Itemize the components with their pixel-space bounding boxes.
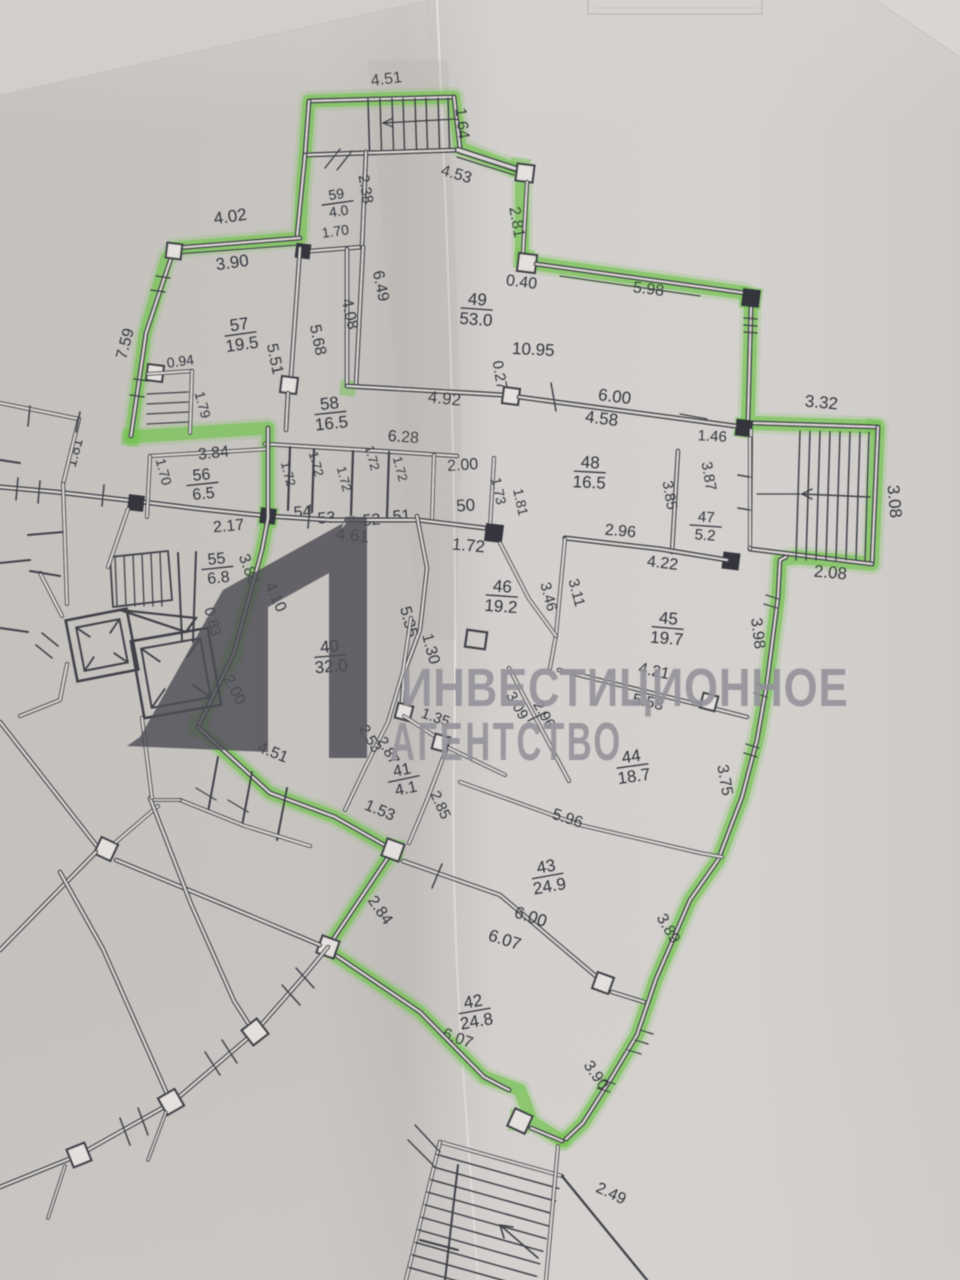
svg-text:2.00: 2.00 (447, 456, 479, 475)
svg-text:6.5: 6.5 (192, 485, 216, 504)
svg-text:50: 50 (456, 495, 476, 515)
svg-text:3.32: 3.32 (804, 392, 839, 414)
svg-text:6.28: 6.28 (387, 428, 419, 447)
svg-text:3.08: 3.08 (884, 484, 906, 519)
svg-text:19.2: 19.2 (484, 596, 518, 617)
svg-text:4.58: 4.58 (584, 407, 619, 430)
svg-text:55: 55 (207, 550, 227, 569)
svg-text:4.0: 4.0 (328, 202, 350, 221)
svg-text:16.5: 16.5 (314, 412, 349, 434)
svg-text:48: 48 (580, 453, 600, 473)
svg-text:2.08: 2.08 (813, 562, 848, 584)
svg-text:3.84: 3.84 (197, 443, 230, 463)
svg-text:53.0: 53.0 (459, 309, 493, 330)
svg-text:4.92: 4.92 (427, 387, 462, 409)
svg-text:16.5: 16.5 (572, 472, 606, 493)
svg-text:58: 58 (319, 393, 340, 414)
svg-text:59: 59 (327, 185, 345, 203)
svg-text:45: 45 (658, 608, 679, 629)
svg-text:2.96: 2.96 (604, 522, 637, 542)
svg-text:5.2: 5.2 (694, 526, 716, 544)
svg-text:6.00: 6.00 (597, 385, 632, 408)
svg-text:АГЕНТСТВО: АГЕНТСТВО (390, 711, 623, 772)
svg-text:57: 57 (229, 314, 250, 335)
svg-text:ИНВЕСТИЦИОННОЕ: ИНВЕСТИЦИОННОЕ (401, 659, 848, 718)
svg-text:19.7: 19.7 (649, 628, 684, 650)
svg-text:44: 44 (621, 746, 642, 767)
svg-text:49: 49 (467, 289, 487, 309)
svg-text:56: 56 (192, 466, 212, 485)
svg-text:10.95: 10.95 (512, 339, 555, 360)
svg-text:46: 46 (492, 576, 512, 596)
svg-text:47: 47 (697, 508, 715, 526)
svg-text:1.72: 1.72 (451, 535, 486, 557)
svg-text:1.46: 1.46 (697, 427, 727, 446)
svg-text:2.17: 2.17 (212, 517, 245, 537)
svg-text:51: 51 (392, 507, 411, 525)
svg-text:6.8: 6.8 (207, 569, 231, 588)
